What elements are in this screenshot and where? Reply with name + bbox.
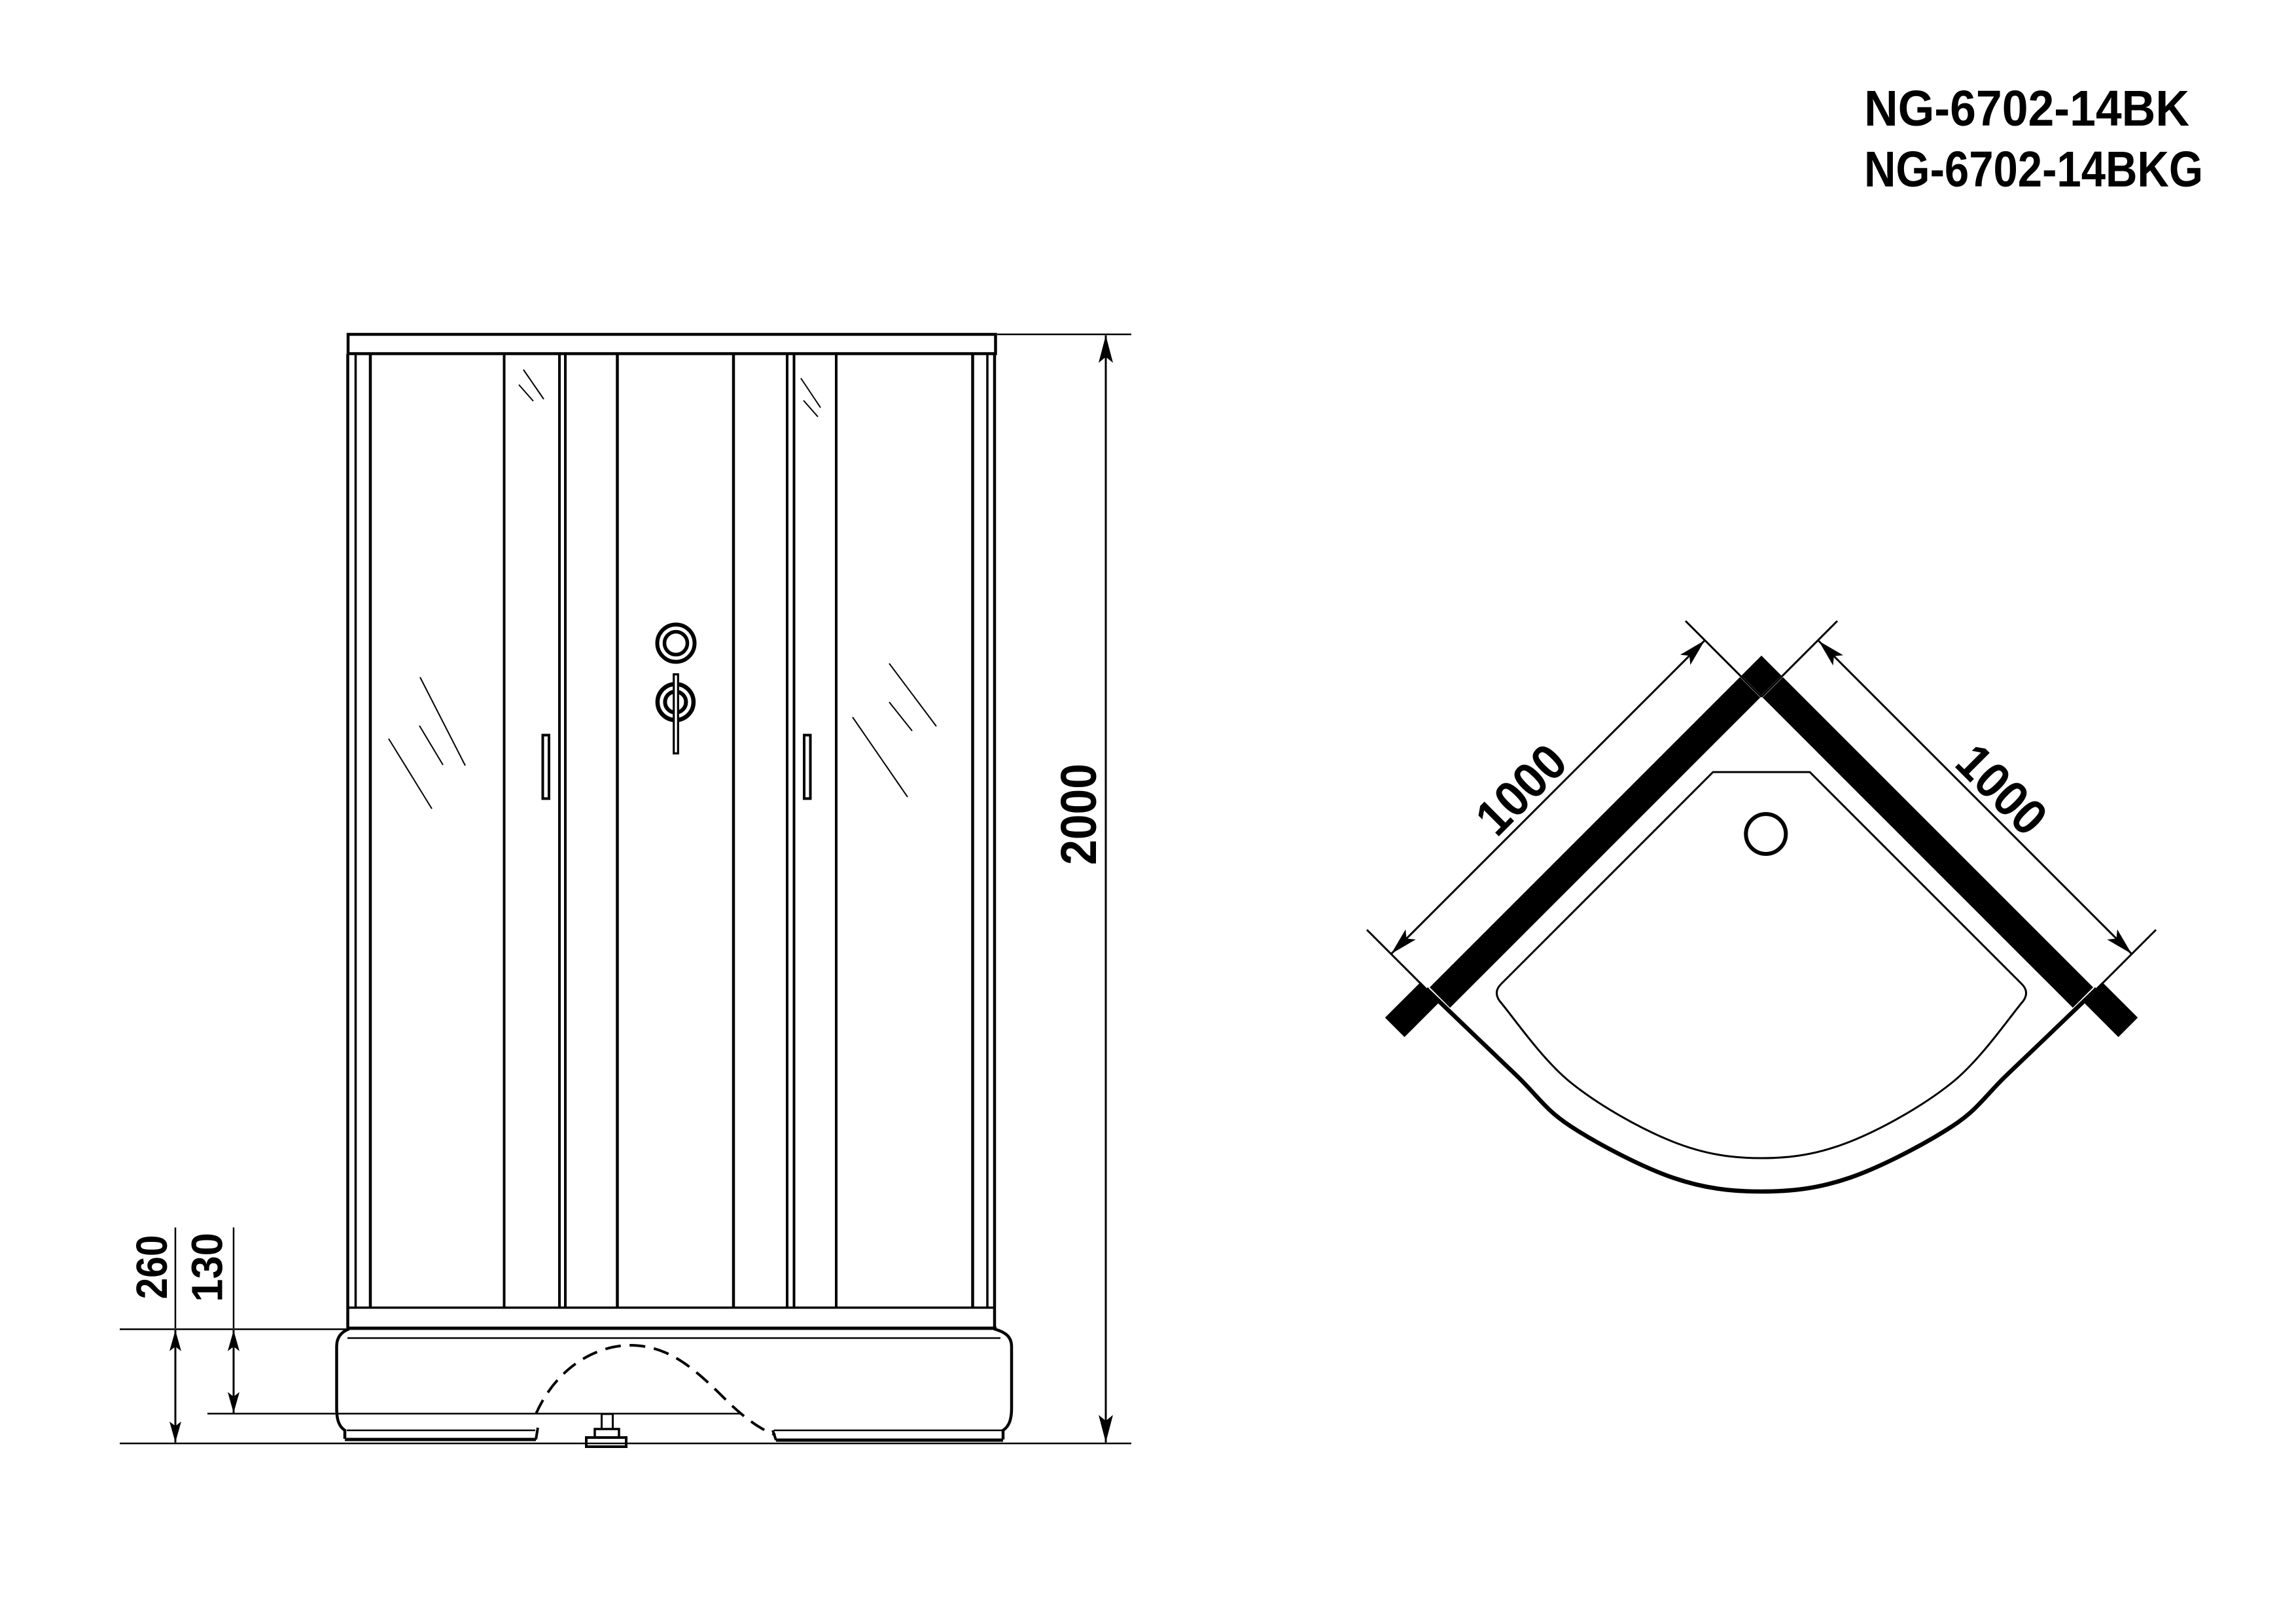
svg-text:130: 130 <box>183 1233 232 1302</box>
svg-text:260: 260 <box>128 1235 177 1299</box>
svg-text:NG-6702-14BKG: NG-6702-14BKG <box>1864 141 2203 198</box>
svg-text:NG-6702-14BK: NG-6702-14BK <box>1864 80 2189 137</box>
svg-text:2000: 2000 <box>1051 764 1107 865</box>
